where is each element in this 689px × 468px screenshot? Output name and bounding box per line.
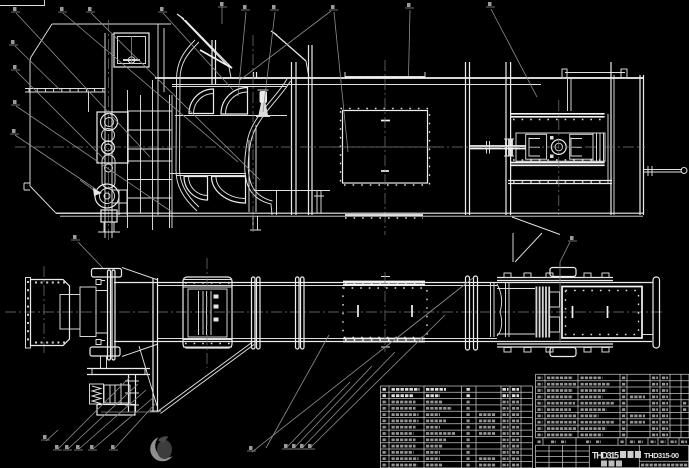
svg-text:THD315-00: THD315-00	[644, 451, 679, 460]
svg-text:THD315: THD315	[592, 451, 619, 461]
